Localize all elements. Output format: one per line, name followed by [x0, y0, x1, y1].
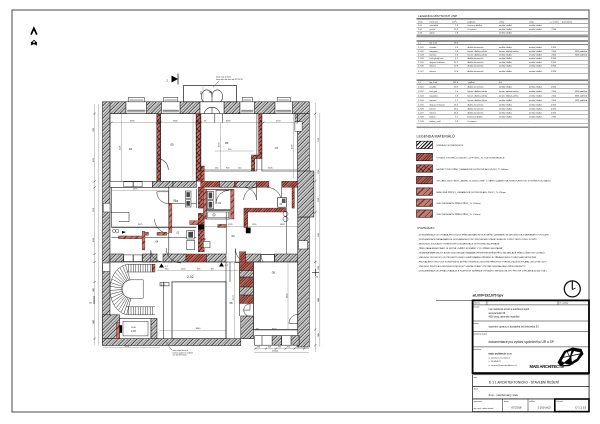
- svg-text:2.2.03: 2.2.03: [418, 95, 425, 97]
- svg-text:2.2.02: 2.2.02: [418, 91, 425, 93]
- svg-text:2np - navrhovaný stav: 2np - navrhovaný stav: [489, 393, 519, 397]
- svg-text:2.1.07: 2.1.07: [418, 71, 425, 73]
- svg-text:1500: 1500: [93, 128, 95, 132]
- svg-text:2.2.06: 2.2.06: [418, 109, 425, 111]
- svg-text:2120: 2120: [318, 198, 320, 202]
- svg-text:omítka hladká: omítka hladká: [529, 65, 543, 68]
- svg-text:omítka hladká: omítka hladká: [529, 46, 543, 49]
- svg-text:omítka hladká: omítka hladká: [529, 50, 543, 53]
- svg-text:mcp autíčková arnošt a autíčko: mcp autíčková arnošt a autíčková ingrid: [489, 308, 530, 311]
- svg-text:2.1.06: 2.1.06: [418, 66, 425, 68]
- svg-text:výtah: výtah: [430, 32, 435, 35]
- svg-text:4125: 4125: [93, 158, 95, 162]
- svg-text:4760(1): 4760(1): [272, 351, 279, 353]
- svg-text:koupelna: koupelna: [430, 51, 439, 53]
- svg-text:investor: investor: [474, 306, 480, 309]
- svg-text:±0,000=192,670 bpv: ±0,000=192,670 bpv: [473, 294, 504, 298]
- svg-text:omítka hladká: omítka hladká: [499, 57, 513, 60]
- svg-text:SDK podhled: SDK podhled: [575, 100, 587, 102]
- svg-text:dlažba keramická: dlažba keramická: [468, 61, 485, 64]
- svg-text:dlažba keramická: dlažba keramická: [468, 103, 485, 106]
- svg-text:omítka hladká: omítka hladká: [499, 99, 513, 102]
- svg-text:SDK podhled: SDK podhled: [575, 55, 587, 57]
- svg-text:omítka hladká: omítka hladká: [499, 103, 513, 106]
- svg-text:číslo: číslo: [418, 21, 423, 23]
- svg-text:_VEŠKERÁ BAREVNOST BUDE ODSOUH: _VEŠKERÁ BAREVNOST BUDE ODSOUHLASOVÁNA A…: [417, 252, 546, 255]
- svg-text:2.2.01: 2.2.01: [418, 86, 425, 88]
- svg-text:(m²): (m²): [453, 20, 457, 23]
- svg-text:strop: strop: [529, 20, 535, 23]
- svg-text:keram. dlažba+stěrka: keram. dlažba+stěrka: [468, 94, 488, 97]
- svg-text:_PROVÁDĚNÍ TYPOVÝCH KONSTRUKCÍ: _PROVÁDĚNÍ TYPOVÝCH KONSTRUKCÍ SE ŘÍDÍ T…: [417, 261, 548, 264]
- svg-text:05: 05: [272, 271, 276, 275]
- svg-text:POZNÁMKY: POZNÁMKY: [418, 226, 435, 230]
- svg-text:_DOKUMENTACE NENAHRAZUJE DOKUM: _DOKUMENTACE NENAHRAZUJE DOKUMENTACI PRO…: [417, 238, 538, 241]
- svg-text:06: 06: [225, 141, 229, 145]
- svg-text:2,950: 2,950: [551, 58, 557, 60]
- svg-text:5440: 5440: [93, 320, 95, 324]
- svg-text:projektant: projektant: [474, 348, 482, 351]
- svg-text:SDK podhled: SDK podhled: [575, 95, 587, 97]
- svg-text:950: 950: [287, 347, 290, 349]
- svg-text:kuchyňský kout: kuchyňský kout: [430, 57, 444, 60]
- svg-text:D 1 1 ARCHITEKTONICKO - STAVEB: D 1 1 ARCHITEKTONICKO - STAVEBNÍ ŘEŠENÍ: [489, 380, 559, 385]
- svg-text:2,950: 2,950: [551, 104, 557, 106]
- svg-text:945: 945: [278, 347, 281, 349]
- svg-text:SDK INSTALAČNÍ PŘEDSTĚNY_TL. 1: SDK INSTALAČNÍ PŘEDSTĚNY_TL. 100mm: [437, 202, 481, 205]
- svg-text:keram. dlažba+stěrka: keram. dlažba+stěrka: [468, 90, 488, 93]
- svg-text:keram. dlažba+stěrka: keram. dlažba+stěrka: [468, 54, 488, 57]
- svg-text:2.2.08: 2.2.08: [418, 117, 425, 119]
- svg-text:NENOSNÉ PŘÍČKY_KERAMICKÉ DUTIN: NENOSNÉ PŘÍČKY_KERAMICKÉ DUTINOVÉ AKU ZD…: [437, 191, 507, 194]
- svg-text:číslo zak.: číslo zak.: [556, 401, 564, 403]
- svg-text:ložnice: ložnice: [430, 109, 437, 111]
- svg-text:dlažba keramická: dlažba keramická: [468, 46, 485, 49]
- svg-text:_DOKUMENTACE JE VYDÁNA PRO ÚČE: _DOKUMENTACE JE VYDÁNA PRO ÚČELY PŘEDJED…: [417, 234, 549, 237]
- svg-text:weinviertelstr 99: weinviertelstr 99: [489, 312, 506, 315]
- svg-text:1485: 1485: [93, 288, 95, 292]
- svg-text:stěny: stěny: [499, 20, 505, 23]
- svg-text:SDK podhled: SDK podhled: [575, 51, 587, 53]
- svg-text:omítka hladká: omítka hladká: [529, 57, 543, 60]
- svg-text:komora: komora: [430, 99, 438, 102]
- svg-text:ložnice: ložnice: [430, 66, 437, 68]
- svg-text:01: 01: [232, 234, 236, 238]
- svg-text:vypracoval: vypracoval: [474, 400, 483, 403]
- svg-text:betonová dlažba: betonová dlažba: [468, 116, 484, 119]
- svg-text:dlažba keramická: dlažba keramická: [468, 65, 485, 68]
- svg-text:koupelna: koupelna: [430, 95, 439, 97]
- svg-text:05: 05: [171, 142, 175, 146]
- svg-text:2,950: 2,950: [551, 47, 557, 49]
- svg-text:omítka hladká: omítka hladká: [529, 28, 543, 31]
- svg-text:omítka hladká: omítka hladká: [529, 61, 543, 64]
- svg-text:chodba: chodba: [430, 86, 438, 88]
- svg-text:_VŠECHNY ODCHYLKY OD PROJEKTU: _VŠECHNY ODCHYLKY OD PROJEKTU NEBO UVAŽO…: [417, 256, 537, 259]
- svg-text:omítka hladká: omítka hladká: [499, 24, 513, 27]
- svg-text:keram. obklad+stěrka: keram. obklad+stěrka: [499, 90, 519, 93]
- svg-text:datum: datum: [504, 400, 509, 403]
- svg-text:04: 04: [129, 147, 133, 151]
- svg-text:07: 07: [275, 146, 279, 150]
- svg-text:tl. terazzo: tl. terazzo: [468, 120, 478, 123]
- svg-text:vzor dle UPP 50x50: vzor dle UPP 50x50: [173, 355, 187, 357]
- svg-text:_DOKUMENTACE JE ZPRACOVÁNA DLE: _DOKUMENTACE JE ZPRACOVÁNA DLE PLATNÝCH …: [417, 270, 547, 273]
- svg-text:ing. arch. adam wlazel: ing. arch. adam wlazel: [474, 408, 494, 410]
- svg-text:chodba: chodba: [430, 47, 438, 49]
- svg-text:2.1.04: 2.1.04: [418, 58, 425, 60]
- svg-text:část: část: [474, 376, 478, 379]
- svg-text:2,950: 2,950: [551, 109, 557, 111]
- svg-text:3040: 3040: [196, 328, 202, 330]
- svg-text:omítka hladká: omítka hladká: [529, 85, 543, 88]
- svg-text:měřítko: měřítko: [529, 400, 535, 403]
- svg-text:obsah: obsah: [474, 389, 479, 391]
- svg-text:stavební úpravy a dostavba bd: stavební úpravy a dostavba bd třebízská …: [489, 325, 540, 329]
- svg-text:dlažba keramická: dlažba keramická: [468, 57, 485, 60]
- svg-text:960: 960: [257, 347, 260, 349]
- svg-text:komora: komora: [430, 54, 438, 57]
- svg-text:omítka hladká: omítka hladká: [499, 54, 513, 57]
- svg-text:dlažba keramická: dlažba keramická: [468, 111, 485, 114]
- svg-text:LEGENDA MÍSTNOSTÍ 2NP: LEGENDA MÍSTNOSTÍ 2NP: [418, 14, 457, 18]
- svg-text:1200: 1200: [318, 266, 320, 270]
- svg-text:omítka hladká: omítka hladká: [529, 90, 543, 93]
- svg-text:omítka hladká: omítka hladká: [529, 24, 543, 27]
- svg-text:kuchyně: kuchyně: [430, 91, 438, 93]
- svg-text:a: vocelova 3, praha 2: a: vocelova 3, praha 2: [489, 356, 511, 359]
- svg-text:2,950: 2,950: [551, 66, 557, 68]
- svg-text:keram. dlažba+stěrka: keram. dlažba+stěrka: [468, 50, 488, 53]
- svg-text:2,950: 2,950: [551, 71, 557, 73]
- svg-text:keram. obklad+stěrka: keram. obklad+stěrka: [499, 94, 519, 97]
- svg-text:VPC AKU ZDIVO INST._JADER_TL.1: VPC AKU ZDIVO INST._JADER_TL.150mm_REF. …: [437, 179, 552, 182]
- svg-text:dlažba keramická: dlažba keramická: [468, 70, 485, 73]
- svg-text:960: 960: [296, 347, 299, 349]
- svg-text:omítka hladká: omítka hladká: [529, 103, 543, 106]
- svg-text:2.2.07: 2.2.07: [418, 112, 425, 114]
- svg-text:2.2.09: 2.2.09: [418, 121, 425, 123]
- svg-text:dlažba keramická: dlažba keramická: [468, 108, 485, 111]
- svg-text:omítka hladká: omítka hladká: [499, 61, 513, 64]
- svg-text:2.1.03: 2.1.03: [418, 55, 425, 57]
- svg-text:ložnice: ložnice: [430, 71, 437, 73]
- svg-text:2.1.01: 2.1.01: [418, 47, 425, 49]
- svg-text:tl. terazzo: tl. terazzo: [468, 28, 478, 31]
- svg-text:omítka hladká: omítka hladká: [499, 32, 513, 35]
- svg-text:STÁVAJÍCÍ KONSTRUKCE: STÁVAJÍCÍ KONSTRUKCE: [437, 144, 464, 147]
- svg-text:2.02: 2.02: [187, 275, 194, 279]
- svg-text:c: 12345673: c: 12345673: [489, 361, 502, 363]
- svg-text:07/2016: 07/2016: [511, 406, 522, 410]
- svg-text:omítka hladká: omítka hladká: [529, 54, 543, 57]
- svg-text:1750: 1750: [318, 170, 320, 174]
- svg-text:5440: 5440: [318, 298, 320, 302]
- svg-text:SDK podhled: SDK podhled: [575, 91, 587, 93]
- svg-text:_NEDÍLNOU SOUČÁSTÍ VÝKRESOVÉ D: _NEDÍLNOU SOUČÁSTÍ VÝKRESOVÉ DOKUMENTACE…: [417, 243, 500, 246]
- svg-text:2120: 2120: [93, 208, 95, 212]
- svg-text:omítka hladká: omítka hladká: [529, 116, 543, 119]
- svg-text:omítka hladká: omítka hladká: [499, 111, 513, 114]
- svg-text:omítka hladká: omítka hladká: [499, 108, 513, 111]
- svg-text:obývací místnost: obývací místnost: [430, 61, 446, 64]
- svg-text:omítka hladká: omítka hladká: [529, 108, 543, 111]
- svg-text:2,950: 2,950: [551, 112, 557, 114]
- svg-text:omítka hladká: omítka hladká: [529, 94, 543, 97]
- svg-text:4150: 4150: [93, 238, 95, 242]
- svg-text:omítka hladká: omítka hladká: [499, 116, 513, 119]
- svg-text:čís. zakázky: čís. zakázky: [559, 302, 568, 304]
- svg-text:5105: 5105: [318, 233, 320, 237]
- svg-text:SDK INSTALAČNÍ PŘEDSTĚNY_TL. 1: SDK INSTALAČNÍ PŘEDSTĚNY_TL. 150mm: [437, 213, 481, 216]
- svg-text:_VŠECHNY PRVKY A KONSTRUKCE MU: _VŠECHNY PRVKY A KONSTRUKCE MUSÍ BÝT INS…: [417, 265, 526, 268]
- svg-text:4150: 4150: [125, 346, 129, 348]
- svg-text:pavlač: pavlač: [430, 29, 436, 31]
- svg-text:projektový stupeň: projektový stupeň: [474, 332, 487, 335]
- svg-text:omítka hladká: omítka hladká: [499, 65, 513, 68]
- svg-text:MAIS ARCHITECTS: MAIS ARCHITECTS: [530, 364, 564, 369]
- svg-text:balkon_vnitř: balkon_vnitř: [430, 120, 441, 123]
- svg-text:omítka hladká: omítka hladká: [529, 70, 543, 73]
- svg-text:balkon: balkon: [430, 117, 436, 119]
- svg-text:e: contact@maisarchitects.cz: e: contact@maisarchitects.cz: [489, 364, 517, 367]
- svg-text:omítka hladká: omítka hladká: [529, 99, 543, 102]
- svg-text:2.2.05: 2.2.05: [418, 104, 425, 106]
- svg-text:dlažba keramická: dlažba keramická: [468, 85, 485, 88]
- svg-text:+balkon: +balkon: [468, 82, 475, 84]
- svg-text:LEGENDA MATERIÁLŮ: LEGENDA MATERIÁLŮ: [417, 134, 456, 139]
- svg-text:omítka hladká: omítka hladká: [529, 111, 543, 114]
- svg-text:C3: C3: [218, 201, 222, 205]
- svg-text:hlavni dvere dle vzoru dle UPP: hlavni dvere dle vzoru dle UPP 50*50*: [216, 79, 243, 81]
- svg-text:2,950: 2,950: [551, 86, 557, 88]
- svg-text:965: 965: [268, 347, 271, 349]
- svg-text:keram. obklad+stěrka: keram. obklad+stěrka: [499, 50, 519, 53]
- svg-text:4320 perg, rakouská republika: 4320 perg, rakouská republika: [489, 316, 521, 319]
- svg-text:2.1.02: 2.1.02: [418, 51, 425, 53]
- svg-text:MEZIBYTOVÉ STĚNY_KERAMICKÉ DUT: MEZIBYTOVÉ STĚNY_KERAMICKÉ DUTINOVÉ AKU …: [437, 168, 509, 171]
- svg-text:místnost: místnost: [430, 20, 439, 23]
- svg-text:omítka hladká: omítka hladká: [499, 28, 513, 31]
- svg-text:zakázka: zakázka: [474, 302, 480, 304]
- svg-text:omítka hladká: omítka hladká: [499, 70, 513, 73]
- svg-text:1140: 1140: [131, 327, 136, 329]
- svg-text:byt 2+kk: byt 2+kk: [430, 41, 439, 44]
- svg-text:VÝSEKY OTVORŮ_DOZDÍVKY_CPP_MVC: VÝSEKY OTVORŮ_DOZDÍVKY_CPP_MVC_TL. DLE K…: [437, 156, 505, 159]
- svg-text:_PŘED ZAHÁJENÍM PRACÍ JE NUTNÉ: _PŘED ZAHÁJENÍM PRACÍ JE NUTNÉ OVĚŘIT RO…: [417, 247, 504, 250]
- svg-text:s.v. (mm): s.v. (mm): [550, 21, 559, 23]
- svg-text:1:100 (A2): 1:100 (A2): [537, 406, 550, 410]
- svg-text:podlaha: podlaha: [468, 21, 477, 23]
- svg-text:keram. dlažba+stěrka: keram. dlažba+stěrka: [468, 99, 488, 102]
- svg-text:schodiště: schodiště: [430, 24, 440, 27]
- svg-text:2.1.05: 2.1.05: [418, 62, 425, 64]
- svg-text:teracová dlažba: teracová dlažba: [468, 24, 483, 27]
- svg-text:2.03: 2.03: [131, 330, 136, 333]
- svg-text:poznámka: poznámka: [562, 21, 573, 23]
- svg-text:byt 3+kk: byt 3+kk: [430, 81, 439, 84]
- svg-text:1485: 1485: [318, 333, 320, 337]
- svg-text:102.6: 102.6: [453, 82, 459, 84]
- svg-text:omítka hladká: omítka hladká: [499, 46, 513, 49]
- svg-text:D 1.1.15: D 1.1.15: [575, 406, 586, 410]
- svg-text:2.2.04: 2.2.04: [418, 100, 425, 102]
- svg-text:1025: 1025: [201, 91, 203, 95]
- svg-text:obývací místnost: obývací místnost: [430, 103, 446, 106]
- svg-text:2,950: 2,950: [551, 62, 557, 64]
- svg-text:stavba: stavba: [474, 322, 479, 325]
- svg-text:7130: 7130: [318, 138, 320, 142]
- svg-text:omítka hladká: omítka hladká: [499, 85, 513, 88]
- svg-text:ložnice: ložnice: [430, 112, 437, 114]
- svg-text:dokumentace pro vydání společn: dokumentace pro vydání společného ÚR a S…: [489, 339, 554, 344]
- svg-text:mais architects s.r.o.: mais architects s.r.o.: [489, 353, 513, 356]
